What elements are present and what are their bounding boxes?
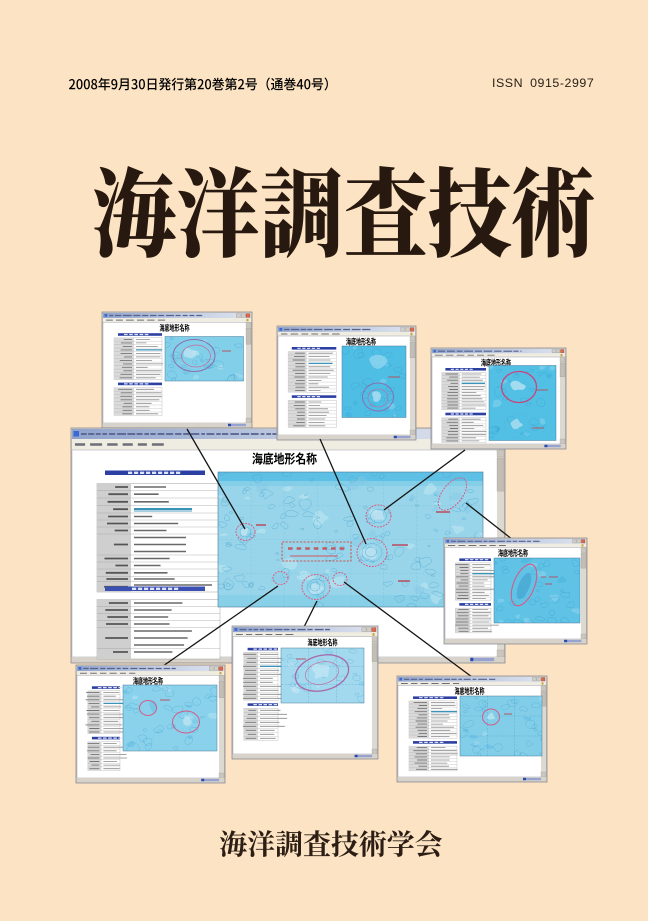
- svg-text:ISSN 0915-2997: ISSN 0915-2997: [492, 76, 594, 90]
